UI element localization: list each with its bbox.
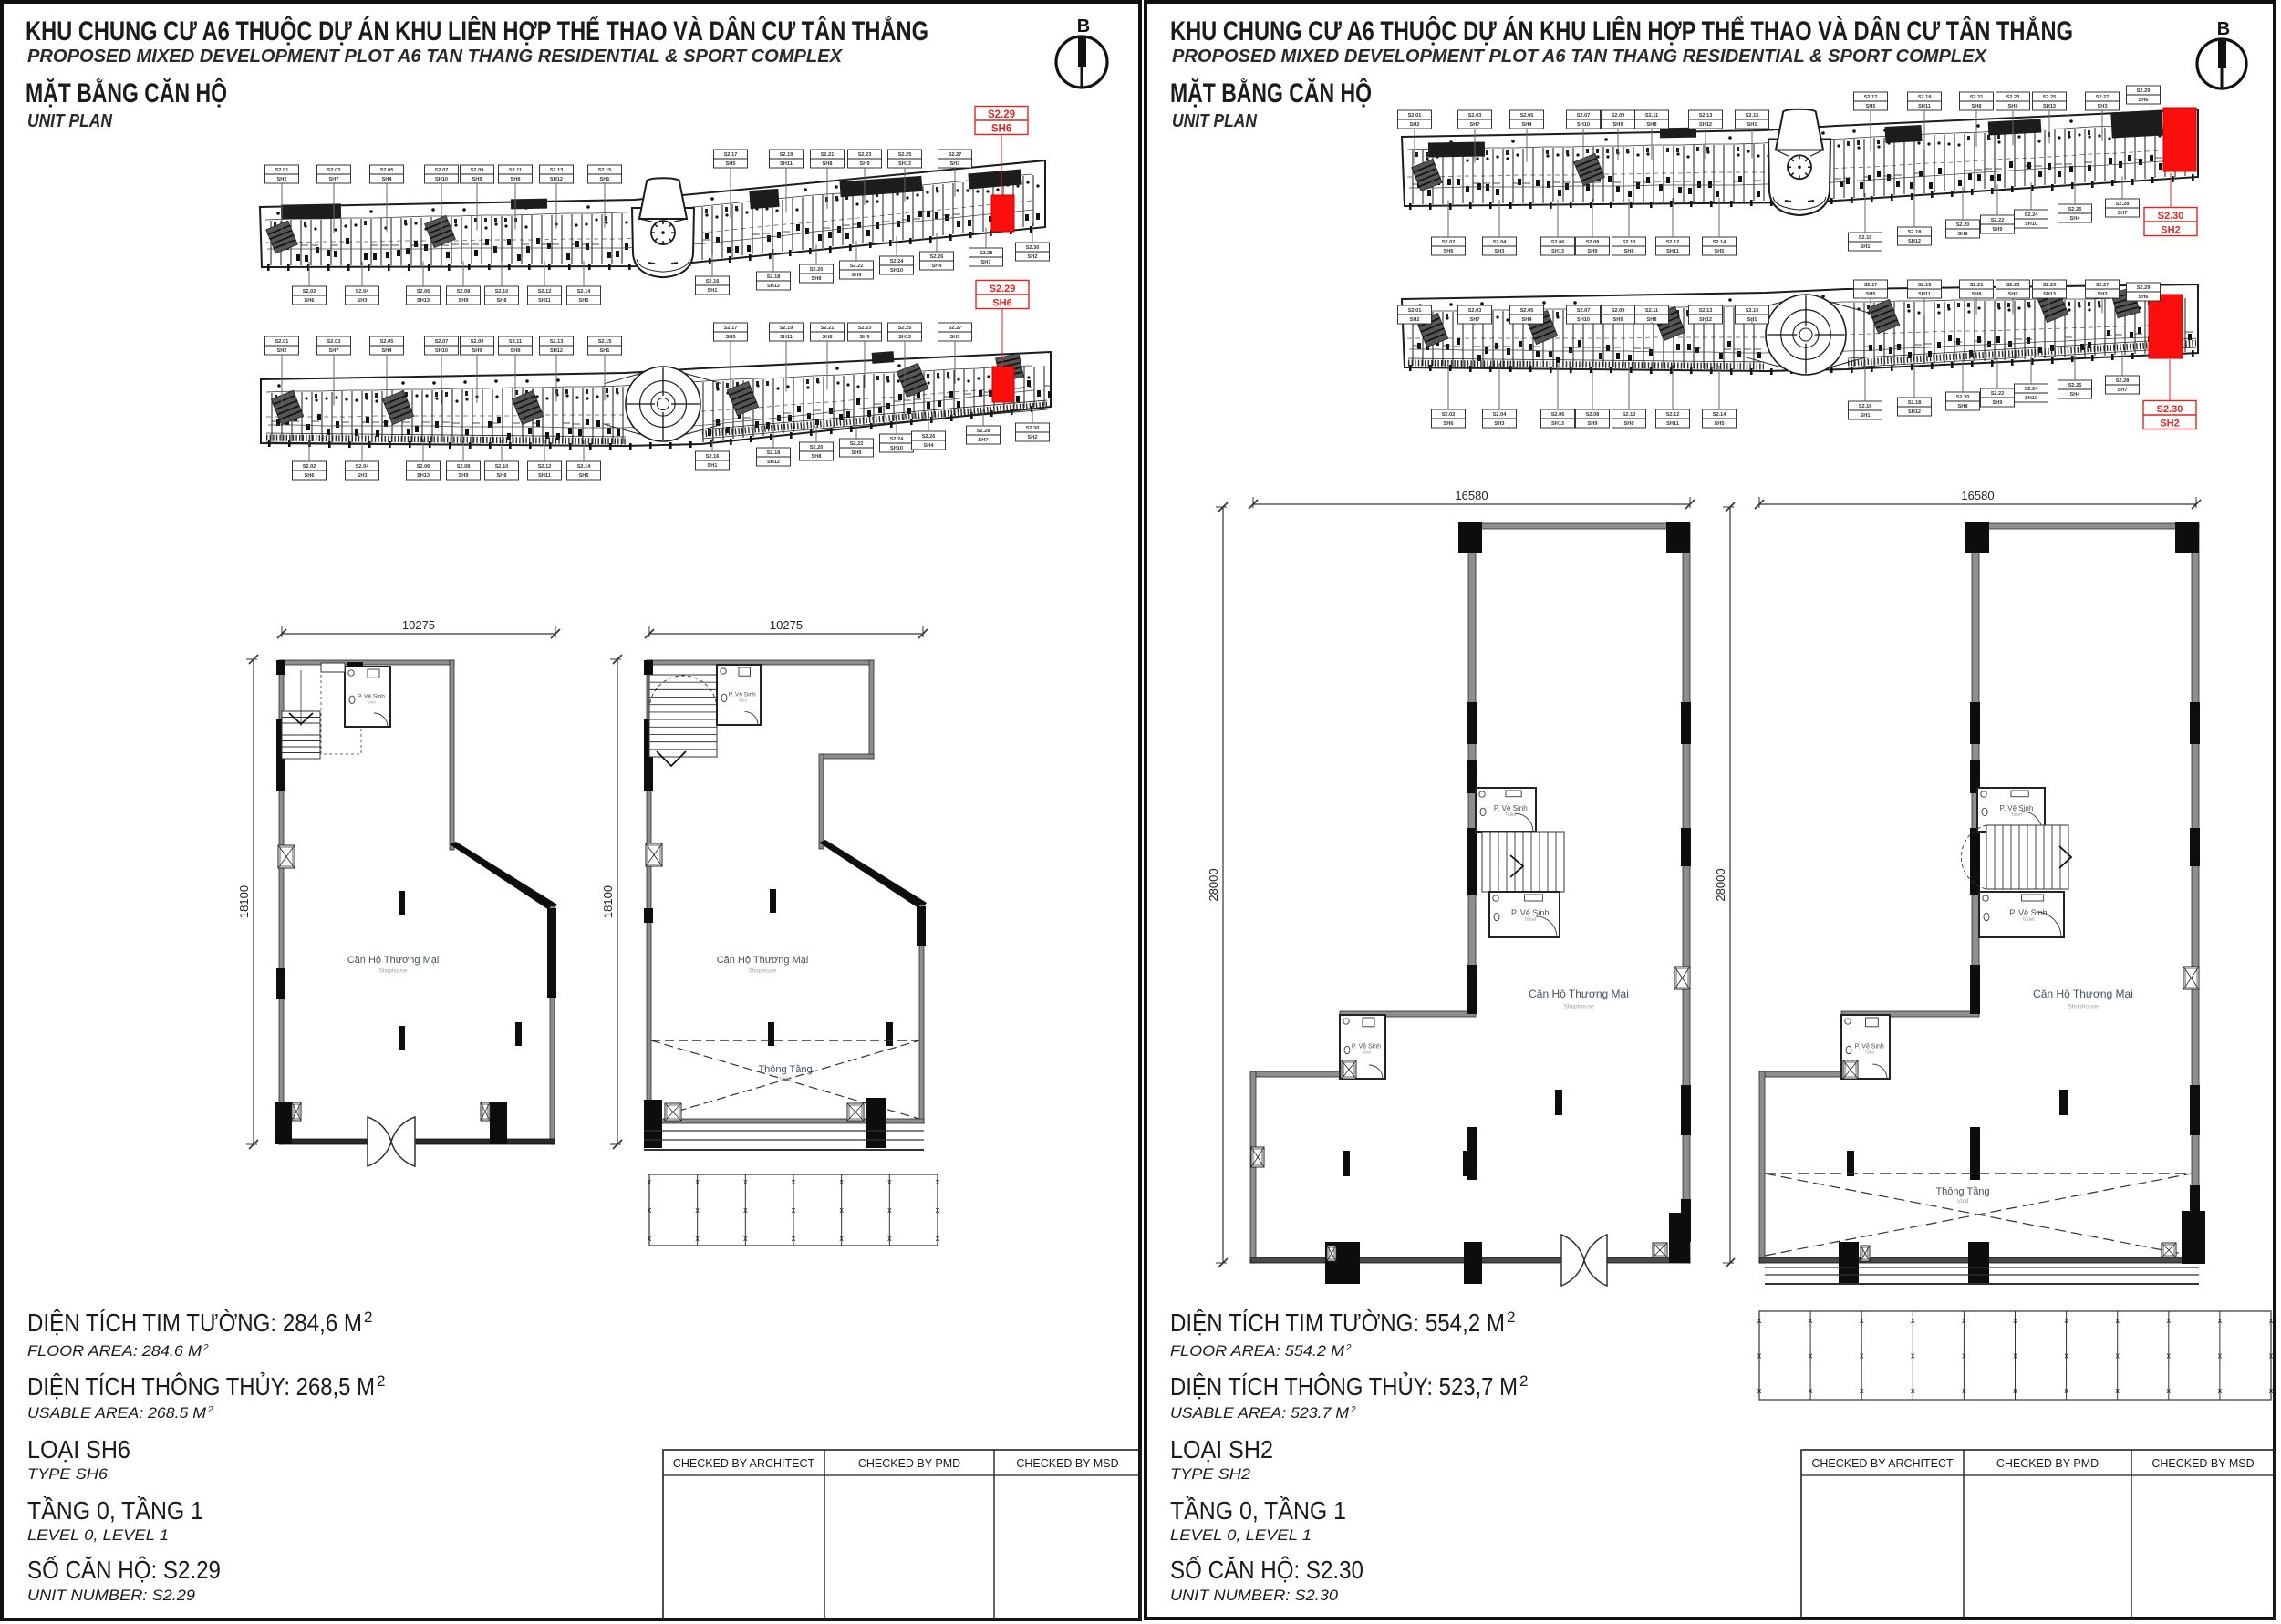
svg-text:S2.18: S2.18 bbox=[1908, 230, 1922, 235]
svg-text:SH1: SH1 bbox=[1747, 122, 1757, 128]
svg-text:2: 2 bbox=[377, 1372, 385, 1390]
svg-text:S2.10: S2.10 bbox=[1623, 240, 1636, 245]
svg-text:x: x bbox=[1757, 1316, 1762, 1325]
svg-text:S2.15: S2.15 bbox=[598, 168, 612, 173]
svg-text:SH4: SH4 bbox=[932, 264, 943, 269]
svg-text:S2.29: S2.29 bbox=[2137, 88, 2151, 94]
svg-text:Toilet: Toilet bbox=[1505, 812, 1517, 818]
svg-text:SH8: SH8 bbox=[1624, 249, 1634, 254]
svg-text:2: 2 bbox=[202, 1343, 209, 1353]
svg-text:x: x bbox=[743, 1234, 748, 1243]
svg-text:2: 2 bbox=[1507, 1309, 1515, 1326]
svg-text:SH6: SH6 bbox=[2139, 98, 2149, 103]
svg-text:Toilet: Toilet bbox=[1524, 917, 1537, 923]
svg-text:S2.14: S2.14 bbox=[577, 464, 592, 470]
svg-text:SH4: SH4 bbox=[382, 177, 393, 182]
svg-text:S2.24: S2.24 bbox=[890, 259, 905, 264]
svg-text:S2.08: S2.08 bbox=[1586, 240, 1600, 245]
svg-text:UNIT NUMBER: S2.29: UNIT NUMBER: S2.29 bbox=[27, 1587, 196, 1604]
svg-text:S2.15: S2.15 bbox=[1746, 308, 1759, 314]
svg-text:SH13: SH13 bbox=[1551, 421, 1564, 427]
svg-text:SH3: SH3 bbox=[2098, 104, 2108, 109]
svg-text:x: x bbox=[2013, 1316, 2017, 1325]
svg-text:x: x bbox=[1962, 1316, 1966, 1325]
svg-text:DIỆN TÍCH THÔNG THỦY: 523,7 M: DIỆN TÍCH THÔNG THỦY: 523,7 M bbox=[1170, 1371, 1518, 1401]
svg-text:S2.03: S2.03 bbox=[327, 168, 341, 173]
svg-text:x: x bbox=[743, 1205, 748, 1215]
svg-text:SH8: SH8 bbox=[823, 335, 833, 340]
svg-text:S2.21: S2.21 bbox=[821, 152, 835, 158]
svg-text:SH8: SH8 bbox=[1624, 421, 1634, 427]
svg-text:SH9: SH9 bbox=[472, 177, 482, 182]
svg-text:x: x bbox=[2013, 1386, 2017, 1395]
svg-text:SH11: SH11 bbox=[1666, 249, 1679, 254]
svg-text:SH9: SH9 bbox=[459, 298, 469, 304]
svg-text:SH4: SH4 bbox=[1522, 122, 1533, 128]
svg-text:TYPE SH2: TYPE SH2 bbox=[1170, 1465, 1251, 1483]
svg-text:S2.12: S2.12 bbox=[538, 464, 552, 470]
svg-text:SH11: SH11 bbox=[538, 298, 551, 304]
svg-text:S2.26: S2.26 bbox=[2068, 207, 2082, 212]
svg-text:S2.13: S2.13 bbox=[1699, 113, 1713, 119]
svg-text:DIỆN TÍCH TIM TƯỜNG: 554,2 M: DIỆN TÍCH TIM TƯỜNG: 554,2 M bbox=[1170, 1309, 1505, 1337]
svg-text:S2.06: S2.06 bbox=[417, 464, 430, 470]
svg-text:x: x bbox=[648, 1234, 652, 1243]
svg-text:SH7: SH7 bbox=[1470, 122, 1480, 128]
svg-text:S2.17: S2.17 bbox=[724, 152, 738, 158]
svg-text:SH8: SH8 bbox=[497, 473, 507, 479]
svg-text:SH2: SH2 bbox=[1410, 122, 1420, 128]
svg-text:USABLE AREA: 523.7 M: USABLE AREA: 523.7 M bbox=[1170, 1404, 1350, 1422]
svg-text:S2.21: S2.21 bbox=[1970, 95, 1984, 100]
svg-text:S2.15: S2.15 bbox=[598, 339, 612, 345]
svg-text:S2.11: S2.11 bbox=[509, 339, 522, 345]
svg-text:SH7: SH7 bbox=[329, 177, 339, 182]
svg-text:DIỆN TÍCH TIM TƯỜNG: 284,6 M: DIỆN TÍCH TIM TƯỜNG: 284,6 M bbox=[27, 1309, 362, 1337]
svg-text:x: x bbox=[2167, 1316, 2172, 1325]
svg-text:SH11: SH11 bbox=[780, 335, 793, 340]
svg-text:SH10: SH10 bbox=[1577, 122, 1590, 128]
svg-text:Toilet: Toilet bbox=[1864, 1050, 1874, 1054]
svg-text:SH3: SH3 bbox=[950, 161, 960, 167]
svg-text:S2.07: S2.07 bbox=[435, 339, 449, 345]
svg-text:S2.18: S2.18 bbox=[1908, 400, 1922, 406]
svg-text:S2.08: S2.08 bbox=[457, 289, 471, 295]
svg-text:S2.30: S2.30 bbox=[1026, 426, 1040, 431]
svg-text:S2.06: S2.06 bbox=[1551, 412, 1565, 418]
svg-text:S2.21: S2.21 bbox=[1970, 283, 1984, 288]
svg-text:10275: 10275 bbox=[770, 618, 803, 632]
svg-text:SH1: SH1 bbox=[1861, 413, 1871, 419]
svg-text:S2.18: S2.18 bbox=[767, 274, 781, 280]
svg-text:Void: Void bbox=[780, 1076, 792, 1082]
svg-text:S2.23: S2.23 bbox=[858, 326, 872, 331]
svg-text:x: x bbox=[792, 1177, 796, 1186]
svg-text:x: x bbox=[2269, 1386, 2274, 1395]
svg-text:P. Vệ Sinh: P. Vệ Sinh bbox=[1352, 1043, 1381, 1050]
svg-text:SH12: SH12 bbox=[1699, 122, 1712, 128]
svg-text:x: x bbox=[2167, 1386, 2172, 1395]
svg-text:Toilet: Toilet bbox=[738, 698, 748, 702]
svg-text:S2.13: S2.13 bbox=[550, 339, 564, 345]
svg-text:S2.07: S2.07 bbox=[1577, 308, 1591, 314]
svg-text:S2.14: S2.14 bbox=[1713, 240, 1727, 245]
svg-text:S2.12: S2.12 bbox=[1666, 240, 1680, 245]
svg-text:S2.27: S2.27 bbox=[2096, 283, 2110, 288]
svg-text:SH3: SH3 bbox=[950, 335, 960, 340]
svg-text:S2.24: S2.24 bbox=[2025, 387, 2039, 392]
svg-text:TẦNG 0, TẦNG 1: TẦNG 0, TẦNG 1 bbox=[27, 1496, 203, 1525]
svg-text:S2.25: S2.25 bbox=[898, 326, 912, 331]
svg-text:S2.30: S2.30 bbox=[1026, 245, 1040, 251]
svg-text:SH9: SH9 bbox=[1993, 227, 2003, 233]
svg-text:SH9: SH9 bbox=[2008, 292, 2018, 297]
svg-text:LOẠI SH2: LOẠI SH2 bbox=[1170, 1435, 1273, 1464]
svg-text:SH13: SH13 bbox=[2043, 292, 2056, 297]
svg-text:S2.29: S2.29 bbox=[990, 284, 1016, 295]
svg-text:SH9: SH9 bbox=[852, 273, 862, 278]
svg-text:P. Vệ Sinh: P. Vệ Sinh bbox=[729, 691, 756, 698]
svg-text:x: x bbox=[648, 1205, 652, 1215]
svg-text:S2.11: S2.11 bbox=[509, 168, 522, 173]
svg-text:x: x bbox=[2269, 1316, 2274, 1325]
svg-text:SH9: SH9 bbox=[852, 450, 862, 456]
svg-text:SH9: SH9 bbox=[1613, 122, 1623, 128]
svg-text:Void: Void bbox=[1957, 1198, 1969, 1205]
svg-text:UNIT PLAN: UNIT PLAN bbox=[1172, 110, 1258, 131]
svg-text:SH9: SH9 bbox=[1993, 400, 2003, 406]
svg-text:Thông Tầng: Thông Tầng bbox=[758, 1064, 812, 1075]
svg-text:16580: 16580 bbox=[1455, 489, 1488, 502]
svg-text:S2.09: S2.09 bbox=[471, 339, 484, 345]
svg-text:B: B bbox=[2217, 19, 2230, 39]
svg-text:S2.08: S2.08 bbox=[457, 464, 471, 470]
svg-text:S2.03: S2.03 bbox=[327, 339, 341, 345]
svg-text:CHECKED BY PMD: CHECKED BY PMD bbox=[1996, 1457, 2099, 1470]
svg-text:SH13: SH13 bbox=[2043, 104, 2056, 109]
svg-text:SH4: SH4 bbox=[2070, 392, 2081, 398]
svg-text:UNIT NUMBER: S2.30: UNIT NUMBER: S2.30 bbox=[1170, 1587, 1339, 1604]
svg-text:SH12: SH12 bbox=[1908, 239, 1921, 244]
svg-text:x: x bbox=[2218, 1351, 2223, 1360]
svg-text:SH5: SH5 bbox=[1715, 249, 1725, 254]
svg-text:P. Vệ Sinh: P. Vệ Sinh bbox=[1494, 804, 1528, 812]
svg-text:SH9: SH9 bbox=[2008, 104, 2018, 109]
svg-text:S2.22: S2.22 bbox=[850, 264, 864, 269]
svg-text:SH8: SH8 bbox=[1958, 232, 1968, 237]
svg-text:SH13: SH13 bbox=[417, 298, 430, 304]
svg-text:SH3: SH3 bbox=[1495, 421, 1505, 427]
svg-text:PROPOSED MIXED DEVELOPMENT PLO: PROPOSED MIXED DEVELOPMENT PLOT A6 TAN T… bbox=[1172, 46, 1987, 67]
svg-text:S2.01: S2.01 bbox=[1408, 308, 1422, 314]
svg-text:Toilet: Toilet bbox=[2011, 812, 2023, 818]
svg-text:S2.16: S2.16 bbox=[706, 454, 720, 460]
svg-text:x: x bbox=[936, 1234, 940, 1243]
svg-text:S2.02: S2.02 bbox=[303, 464, 316, 470]
svg-text:SH6: SH6 bbox=[992, 297, 1011, 308]
svg-text:MẶT BẰNG CĂN HỘ: MẶT BẰNG CĂN HỘ bbox=[26, 78, 227, 109]
svg-text:FLOOR AREA: 284.6 M: FLOOR AREA: 284.6 M bbox=[27, 1342, 202, 1360]
svg-text:S2.09: S2.09 bbox=[1612, 113, 1625, 119]
svg-text:SH5: SH5 bbox=[579, 298, 589, 304]
svg-text:x: x bbox=[695, 1205, 700, 1215]
svg-text:S2.29: S2.29 bbox=[988, 109, 1015, 120]
svg-text:SH4: SH4 bbox=[924, 443, 935, 449]
svg-text:SH13: SH13 bbox=[898, 161, 911, 167]
svg-text:S2.01: S2.01 bbox=[275, 168, 289, 173]
svg-text:x: x bbox=[2115, 1316, 2120, 1325]
svg-text:CHECKED BY MSD: CHECKED BY MSD bbox=[2151, 1457, 2254, 1470]
svg-text:x: x bbox=[2064, 1386, 2068, 1395]
svg-text:SH12: SH12 bbox=[767, 460, 780, 465]
svg-text:S2.17: S2.17 bbox=[1864, 283, 1878, 288]
svg-text:S2.22: S2.22 bbox=[1991, 218, 2005, 223]
svg-text:SH6: SH6 bbox=[1444, 421, 1454, 427]
svg-text:LEVEL 0, LEVEL 1: LEVEL 0, LEVEL 1 bbox=[1170, 1526, 1312, 1544]
svg-text:S2.17: S2.17 bbox=[1864, 95, 1878, 100]
svg-text:S2.22: S2.22 bbox=[1991, 391, 2005, 397]
svg-text:S2.12: S2.12 bbox=[538, 289, 552, 295]
svg-text:S2.19: S2.19 bbox=[1918, 283, 1932, 288]
svg-text:Shophouse: Shophouse bbox=[749, 968, 777, 974]
svg-text:S2.15: S2.15 bbox=[1746, 113, 1759, 119]
svg-text:SH5: SH5 bbox=[726, 335, 736, 340]
svg-text:S2.19: S2.19 bbox=[780, 152, 793, 158]
svg-text:SH8: SH8 bbox=[812, 276, 822, 282]
svg-text:S2.16: S2.16 bbox=[706, 279, 720, 284]
svg-text:SH10: SH10 bbox=[2025, 396, 2037, 401]
svg-text:DIỆN TÍCH THÔNG THỦY: 268,5 M: DIỆN TÍCH THÔNG THỦY: 268,5 M bbox=[27, 1371, 375, 1401]
svg-text:KHU CHUNG CƯ A6 THUỘC DỰ ÁN KH: KHU CHUNG CƯ A6 THUỘC DỰ ÁN KHU LIÊN HỢP… bbox=[1170, 16, 2073, 47]
svg-text:S2.30: S2.30 bbox=[2158, 211, 2184, 222]
svg-text:x: x bbox=[1860, 1351, 1864, 1360]
svg-text:SH1: SH1 bbox=[600, 177, 610, 182]
svg-text:SH1: SH1 bbox=[1861, 244, 1871, 250]
svg-text:SH3: SH3 bbox=[1495, 249, 1505, 254]
svg-text:x: x bbox=[1757, 1386, 1762, 1395]
svg-text:S2.25: S2.25 bbox=[2043, 95, 2057, 100]
svg-text:S2.04: S2.04 bbox=[1493, 240, 1508, 245]
svg-text:S2.25: S2.25 bbox=[2043, 283, 2057, 288]
svg-text:S2.03: S2.03 bbox=[1468, 308, 1482, 314]
svg-text:S2.28: S2.28 bbox=[980, 251, 993, 256]
svg-text:Shophouse: Shophouse bbox=[1563, 1003, 1594, 1009]
svg-text:SH12: SH12 bbox=[1908, 409, 1921, 415]
svg-text:S2.19: S2.19 bbox=[1918, 95, 1932, 100]
svg-text:SH4: SH4 bbox=[1522, 317, 1533, 323]
svg-text:S2.13: S2.13 bbox=[550, 168, 564, 173]
svg-text:Shophouse: Shophouse bbox=[2068, 1003, 2099, 1009]
svg-text:SỐ CĂN HỘ: S2.29: SỐ CĂN HỘ: S2.29 bbox=[27, 1555, 221, 1584]
svg-text:SH5: SH5 bbox=[726, 161, 736, 167]
svg-text:SH7: SH7 bbox=[2118, 388, 2128, 393]
svg-text:S2.09: S2.09 bbox=[471, 168, 484, 173]
svg-text:SH10: SH10 bbox=[890, 446, 903, 451]
svg-text:x: x bbox=[1911, 1386, 1915, 1395]
svg-text:S2.30: S2.30 bbox=[2157, 404, 2183, 415]
svg-text:2: 2 bbox=[1519, 1372, 1528, 1390]
svg-text:P. Vệ Sinh: P. Vệ Sinh bbox=[358, 693, 385, 699]
svg-text:SH1: SH1 bbox=[600, 348, 610, 354]
svg-text:x: x bbox=[2115, 1351, 2120, 1360]
svg-text:P. Vệ Sinh: P. Vệ Sinh bbox=[1855, 1043, 1884, 1050]
svg-text:SỐ CĂN HỘ: S2.30: SỐ CĂN HỘ: S2.30 bbox=[1170, 1555, 1363, 1584]
svg-text:x: x bbox=[839, 1177, 844, 1186]
svg-text:x: x bbox=[936, 1177, 940, 1186]
svg-text:CHECKED BY MSD: CHECKED BY MSD bbox=[1016, 1457, 1118, 1470]
svg-text:S2.26: S2.26 bbox=[922, 434, 936, 440]
svg-text:x: x bbox=[887, 1205, 892, 1215]
svg-text:P. Vệ Sinh: P. Vệ Sinh bbox=[1511, 908, 1549, 917]
svg-text:SH9: SH9 bbox=[860, 335, 870, 340]
svg-text:x: x bbox=[1809, 1316, 1813, 1325]
svg-text:UNIT PLAN: UNIT PLAN bbox=[27, 110, 113, 131]
svg-text:S2.20: S2.20 bbox=[810, 445, 824, 450]
svg-text:S2.13: S2.13 bbox=[1699, 308, 1713, 314]
svg-text:SH8: SH8 bbox=[1958, 404, 1968, 409]
svg-text:x: x bbox=[695, 1234, 700, 1243]
svg-text:SH9: SH9 bbox=[459, 473, 469, 479]
svg-text:S2.08: S2.08 bbox=[1586, 412, 1600, 418]
svg-text:SH7: SH7 bbox=[1470, 317, 1480, 323]
svg-text:SH12: SH12 bbox=[767, 284, 780, 289]
svg-text:S2.06: S2.06 bbox=[1551, 240, 1565, 245]
svg-text:x: x bbox=[2167, 1351, 2172, 1360]
svg-text:SH11: SH11 bbox=[780, 161, 793, 167]
svg-text:SH6: SH6 bbox=[305, 298, 315, 304]
svg-text:x: x bbox=[1809, 1386, 1813, 1395]
svg-text:2: 2 bbox=[1350, 1405, 1356, 1415]
svg-text:SH6: SH6 bbox=[991, 123, 1011, 134]
svg-text:S2.18: S2.18 bbox=[767, 450, 781, 456]
svg-text:SH7: SH7 bbox=[329, 348, 339, 354]
svg-text:SH9: SH9 bbox=[472, 348, 482, 354]
svg-text:SH2: SH2 bbox=[2160, 418, 2179, 429]
svg-text:x: x bbox=[839, 1234, 844, 1243]
svg-text:S2.17: S2.17 bbox=[724, 326, 738, 331]
svg-text:S2.01: S2.01 bbox=[275, 339, 289, 345]
svg-text:SH10: SH10 bbox=[1577, 317, 1590, 323]
svg-text:Căn Hộ Thương Mại: Căn Hộ Thương Mại bbox=[347, 955, 440, 966]
svg-text:SH12: SH12 bbox=[550, 177, 563, 182]
svg-text:SH7: SH7 bbox=[2118, 211, 2128, 216]
svg-text:S2.25: S2.25 bbox=[898, 152, 912, 158]
svg-text:SH11: SH11 bbox=[1918, 292, 1931, 297]
svg-text:SH8: SH8 bbox=[1972, 292, 1982, 297]
svg-text:SH2: SH2 bbox=[277, 348, 287, 354]
svg-text:x: x bbox=[792, 1205, 796, 1215]
svg-text:S2.14: S2.14 bbox=[577, 289, 592, 295]
svg-text:SH10: SH10 bbox=[890, 268, 903, 274]
svg-text:SH3: SH3 bbox=[358, 473, 368, 479]
svg-text:S2.19: S2.19 bbox=[780, 326, 793, 331]
svg-text:SH7: SH7 bbox=[979, 438, 989, 443]
svg-text:SH11: SH11 bbox=[1918, 104, 1931, 109]
svg-text:KHU CHUNG CƯ A6 THUỘC DỰ ÁN KH: KHU CHUNG CƯ A6 THUỘC DỰ ÁN KHU LIÊN HỢP… bbox=[26, 16, 928, 47]
svg-text:S2.11: S2.11 bbox=[1645, 308, 1658, 314]
svg-text:S2.23: S2.23 bbox=[2006, 283, 2020, 288]
svg-text:SH6: SH6 bbox=[2139, 295, 2149, 300]
svg-text:SH7: SH7 bbox=[981, 260, 991, 265]
svg-text:x: x bbox=[1962, 1386, 1966, 1395]
svg-text:USABLE AREA: 268.5 M: USABLE AREA: 268.5 M bbox=[27, 1404, 207, 1422]
svg-text:SH5: SH5 bbox=[1715, 421, 1725, 427]
svg-text:SH5: SH5 bbox=[1866, 104, 1876, 109]
svg-text:SH13: SH13 bbox=[417, 473, 430, 479]
svg-text:SH1: SH1 bbox=[708, 463, 718, 469]
svg-text:S2.03: S2.03 bbox=[1468, 113, 1482, 119]
svg-text:PROPOSED MIXED DEVELOPMENT PLO: PROPOSED MIXED DEVELOPMENT PLOT A6 TAN T… bbox=[27, 46, 843, 67]
svg-text:S2.02: S2.02 bbox=[1442, 240, 1456, 245]
svg-text:x: x bbox=[2269, 1351, 2274, 1360]
svg-text:S2.14: S2.14 bbox=[1713, 412, 1727, 418]
svg-text:x: x bbox=[695, 1177, 700, 1186]
svg-text:S2.27: S2.27 bbox=[2096, 95, 2110, 100]
svg-text:SH8: SH8 bbox=[1647, 317, 1657, 323]
svg-text:SH11: SH11 bbox=[1666, 421, 1679, 427]
svg-text:TẦNG 0, TẦNG 1: TẦNG 0, TẦNG 1 bbox=[1170, 1496, 1346, 1525]
svg-text:Căn Hộ Thương Mại: Căn Hộ Thương Mại bbox=[717, 955, 809, 966]
svg-text:x: x bbox=[1911, 1351, 1915, 1360]
svg-text:S2.05: S2.05 bbox=[1520, 308, 1534, 314]
svg-text:x: x bbox=[1809, 1351, 1813, 1360]
svg-text:SH8: SH8 bbox=[511, 348, 521, 354]
svg-text:S2.24: S2.24 bbox=[890, 437, 905, 442]
svg-text:Shophouse: Shophouse bbox=[379, 968, 408, 974]
svg-text:S2.10: S2.10 bbox=[495, 464, 509, 470]
svg-text:SH13: SH13 bbox=[898, 335, 911, 340]
svg-text:SH8: SH8 bbox=[511, 177, 521, 182]
svg-text:28000: 28000 bbox=[1207, 868, 1220, 901]
svg-text:CHECKED BY ARCHITECT: CHECKED BY ARCHITECT bbox=[1811, 1457, 1954, 1470]
svg-text:SH8: SH8 bbox=[1972, 104, 1982, 109]
svg-text:SH2: SH2 bbox=[277, 177, 287, 182]
svg-text:SH12: SH12 bbox=[550, 348, 563, 354]
svg-text:2: 2 bbox=[364, 1309, 372, 1326]
svg-text:Căn Hộ Thương Mại: Căn Hộ Thương Mại bbox=[1529, 988, 1629, 1000]
svg-text:S2.20: S2.20 bbox=[1956, 395, 1970, 400]
svg-text:S2.02: S2.02 bbox=[1442, 412, 1456, 418]
svg-text:SH2: SH2 bbox=[1410, 317, 1420, 323]
svg-text:SH3: SH3 bbox=[2098, 292, 2108, 297]
svg-text:x: x bbox=[887, 1177, 892, 1186]
svg-text:SH9: SH9 bbox=[1588, 421, 1598, 427]
svg-text:SH2: SH2 bbox=[1028, 435, 1038, 440]
svg-text:SH4: SH4 bbox=[2070, 216, 2081, 222]
svg-text:10275: 10275 bbox=[402, 618, 435, 632]
svg-text:SH2: SH2 bbox=[2161, 224, 2180, 235]
svg-text:16580: 16580 bbox=[1961, 489, 1994, 502]
svg-text:SH11: SH11 bbox=[538, 473, 551, 479]
svg-text:S2.07: S2.07 bbox=[1577, 113, 1591, 119]
svg-text:S2.10: S2.10 bbox=[495, 289, 509, 295]
svg-text:SH5: SH5 bbox=[579, 473, 589, 479]
svg-text:S2.26: S2.26 bbox=[930, 254, 944, 260]
svg-text:S2.07: S2.07 bbox=[435, 168, 449, 173]
svg-text:S2.23: S2.23 bbox=[2006, 95, 2020, 100]
svg-text:S2.05: S2.05 bbox=[1520, 113, 1534, 119]
svg-text:S2.05: S2.05 bbox=[380, 339, 394, 345]
svg-text:SH10: SH10 bbox=[435, 177, 448, 182]
svg-text:x: x bbox=[1860, 1316, 1864, 1325]
svg-text:MẶT BẰNG CĂN HỘ: MẶT BẰNG CĂN HỘ bbox=[1170, 78, 1372, 109]
svg-text:S2.22: S2.22 bbox=[850, 441, 864, 447]
svg-text:SH9: SH9 bbox=[860, 161, 870, 167]
svg-text:x: x bbox=[2064, 1316, 2068, 1325]
svg-text:S2.27: S2.27 bbox=[949, 326, 962, 331]
svg-text:S2.28: S2.28 bbox=[2116, 202, 2130, 207]
svg-text:Thông Tầng: Thông Tầng bbox=[1935, 1186, 1989, 1197]
